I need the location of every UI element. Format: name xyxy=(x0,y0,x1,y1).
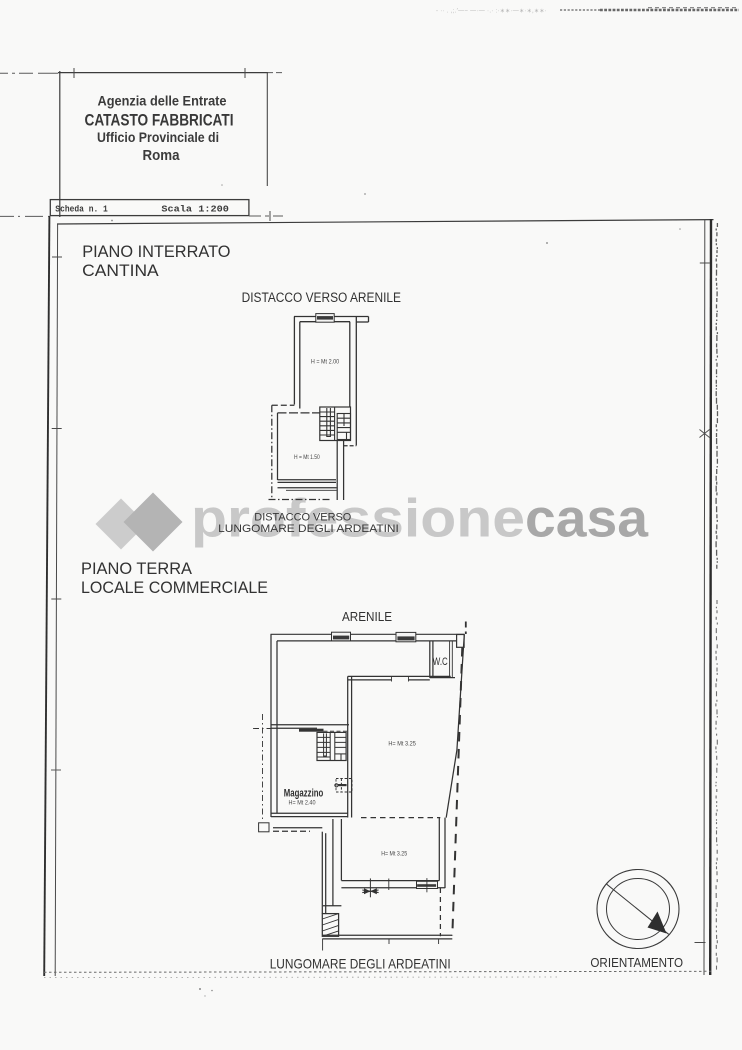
svg-text:ORIENTAMENTO: ORIENTAMENTO xyxy=(590,955,683,970)
svg-text:PIANO INTERRATO: PIANO INTERRATO xyxy=(82,242,230,261)
svg-text:LUNGOMARE DEGLI ARDEATINI: LUNGOMARE DEGLI ARDEATINI xyxy=(270,956,451,971)
svg-text:- ·· . ,;.′—− —·— ·.· :·∗∗·—∗: - ·· . ,;.′—− —·— ·.· :·∗∗·—∗·∗,∗∗· xyxy=(436,9,547,15)
svg-text:Ufficio Provinciale di: Ufficio Provinciale di xyxy=(97,130,219,145)
svg-text:LUNGOMARE DEGLI ARDEATINI: LUNGOMARE DEGLI ARDEATINI xyxy=(218,523,399,535)
svg-text:casa: casa xyxy=(525,489,649,549)
svg-text:ARENILE: ARENILE xyxy=(342,610,392,624)
svg-text:H = Mt 1.50: H = Mt 1.50 xyxy=(294,454,320,461)
svg-text:PIANO TERRA: PIANO TERRA xyxy=(81,559,193,578)
svg-text:CATASTO FABBRICATI: CATASTO FABBRICATI xyxy=(85,112,234,130)
svg-text:H= Mt 2.40: H= Mt 2.40 xyxy=(289,799,316,806)
svg-text:H= Mt 3.25: H= Mt 3.25 xyxy=(388,740,416,747)
svg-text:CANTINA: CANTINA xyxy=(82,261,159,280)
svg-text:DISTACCO VERSO ARENILE: DISTACCO VERSO ARENILE xyxy=(242,290,401,305)
svg-text:Scala 1:200: Scala 1:200 xyxy=(161,204,229,214)
svg-text:LOCALE COMMERCIALE: LOCALE COMMERCIALE xyxy=(81,578,268,597)
svg-text:professione: professione xyxy=(191,489,525,549)
svg-text:Roma: Roma xyxy=(143,148,181,164)
svg-text:Magazzino: Magazzino xyxy=(284,788,324,800)
svg-text:DISTACCO VERSO: DISTACCO VERSO xyxy=(254,512,351,524)
svg-text:H= Mt 3.25: H= Mt 3.25 xyxy=(381,851,407,858)
svg-text:H = Mt 2.00: H = Mt 2.00 xyxy=(311,358,340,365)
svg-text:W.C: W.C xyxy=(433,656,448,668)
svg-text:Agenzia delle Entrate: Agenzia delle Entrate xyxy=(98,94,227,109)
svg-text:Scheda n. 1: Scheda n. 1 xyxy=(55,204,108,214)
